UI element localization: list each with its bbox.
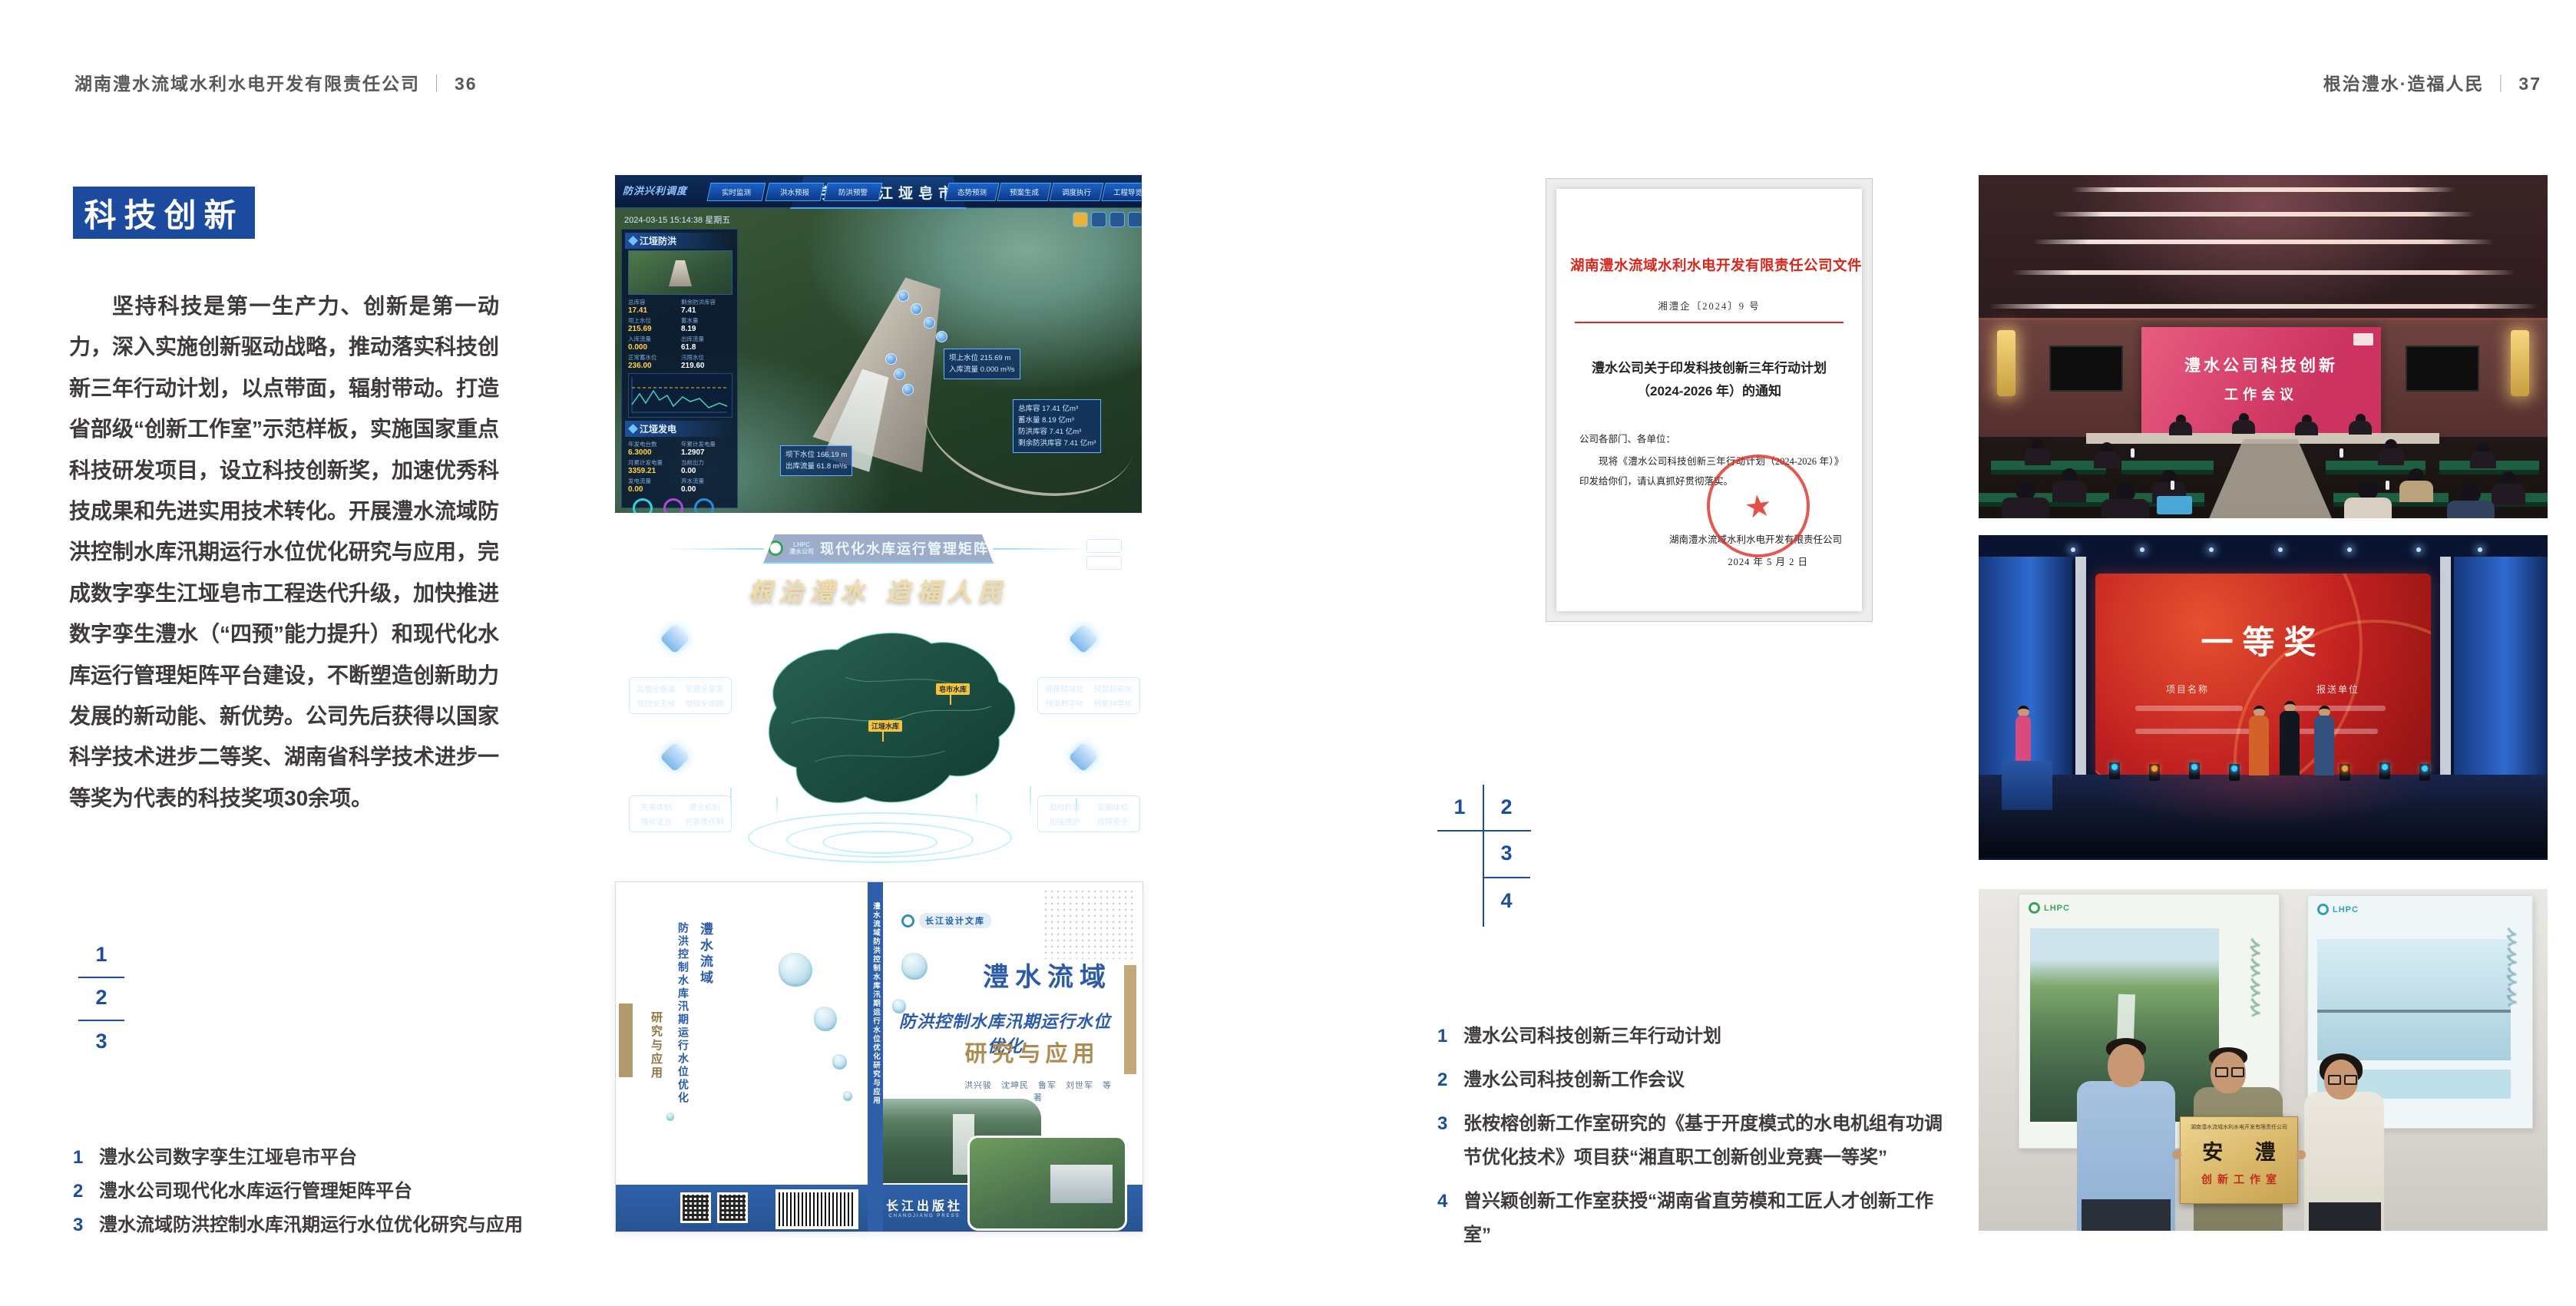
page-number-left: 36	[455, 74, 478, 94]
award-row-text	[2293, 729, 2378, 734]
caption-text: 澧水公司科技创新三年行动计划	[1463, 1020, 1944, 1053]
light-pillar	[730, 788, 732, 818]
light-pillar	[976, 794, 977, 820]
panel-icon-sizhi	[660, 742, 690, 772]
header-wing	[993, 548, 1093, 550]
gate-pin[interactable]	[936, 331, 947, 342]
changjiang-logo-icon	[901, 914, 914, 927]
ceiling-light	[2052, 212, 2475, 217]
lhpc-logo-icon	[768, 541, 783, 556]
gate-pin[interactable]	[898, 290, 909, 302]
power-metrics: 年发电台数6.3000 年累计发电量1.2907 月累计发电量3359.21 当…	[628, 440, 731, 494]
award-column-project: 项目名称	[2166, 683, 2209, 696]
lhpc-logo-icon	[2317, 904, 2329, 915]
panel-name: 四制	[638, 775, 715, 792]
book-spine: 澧水流域防洪控制水库汛期运行水位优化研究与应用	[868, 882, 883, 1232]
ceiling-light	[2072, 187, 2455, 192]
stage-light-dot	[2347, 547, 2352, 552]
hand	[2297, 1150, 2306, 1159]
caption-item: 2 澧水公司现代化水库运行管理矩阵平台	[73, 1175, 564, 1208]
caption-item: 3 澧水流域防洪控制水库汛期运行水位优化研究与应用	[73, 1208, 564, 1242]
wall-tv	[2049, 346, 2123, 392]
red-rule	[1575, 322, 1844, 323]
stage-light-dot	[2416, 547, 2421, 552]
tissue-box	[2157, 496, 2192, 514]
presenter-silhouette	[2169, 415, 2192, 435]
logo-text: LHPC澧水公司	[789, 541, 814, 555]
header-separator: ｜	[428, 74, 447, 94]
attendee-silhouette	[2052, 468, 2086, 502]
halftone-decoration	[1043, 888, 1136, 959]
plaque-name: 安 澧	[2181, 1136, 2297, 1165]
caption-number: 4	[1437, 1185, 1463, 1218]
body-paragraph: 坚持科技是第一生产力、创新是第一动力，深入实施创新驱动战略，推动落实科技创新三年…	[69, 286, 499, 818]
caption-text: 澧水公司现代化水库运行管理矩阵平台	[99, 1175, 564, 1208]
panel-name: 四管	[1047, 775, 1123, 792]
platform-title: 现代化水库运行管理矩阵	[820, 538, 989, 558]
person-right-pants	[2309, 1202, 2381, 1231]
caption-number: 2	[1437, 1063, 1463, 1097]
figure-marker-3: 3	[1488, 841, 1525, 865]
callout-storage: 总库容 17.41 亿m³ 蓄水量 8.19 亿m³ 防洪库容 7.41 亿m³…	[1013, 399, 1101, 453]
attendee-silhouette	[2101, 482, 2149, 518]
water-level-chart	[628, 373, 732, 418]
tab-flood-warning[interactable]: 防洪预警	[823, 183, 882, 201]
gate-pin[interactable]	[894, 369, 905, 380]
tab-realtime-monitor[interactable]: 实时监测	[706, 183, 766, 201]
water-droplet	[832, 1054, 847, 1070]
light-pillar	[1076, 798, 1077, 818]
attendee-silhouette	[2025, 439, 2051, 465]
poster-bridge	[2317, 939, 2511, 1060]
caption-number: 3	[73, 1208, 99, 1242]
spine-title: 澧水流域防洪控制水库汛期运行水位优化研究与应用	[870, 902, 881, 1232]
figure-matrix-platform: LHPC澧水公司 现代化水库运行管理矩阵 根治澧水 造福人民 皂市水库 江垭水库	[615, 530, 1142, 868]
ripple-ring	[822, 831, 937, 854]
attendee-silhouette	[2447, 484, 2495, 518]
back-cover-title-2: 防洪控制水库汛期运行水位优化	[676, 922, 691, 1105]
qr-code	[717, 1192, 748, 1223]
screen-title-line1: 澧水公司科技创新	[2141, 353, 2381, 376]
tan-accent-bar	[1124, 965, 1136, 1074]
panel-icon-siguan	[1068, 742, 1099, 772]
wall-lamp	[1997, 330, 2015, 396]
host-podium	[2002, 761, 2052, 810]
diamond-icon	[628, 236, 638, 246]
screen-reflection	[2094, 775, 2432, 828]
water-droplet	[843, 1091, 852, 1101]
left-page-header: 湖南澧水流域水利水电开发有限责任公司｜36	[74, 69, 478, 95]
caption-number: 1	[73, 1141, 99, 1175]
marker-divider	[1483, 877, 1530, 878]
glasses-icon	[2215, 1067, 2244, 1077]
caption-text: 曾兴颖创新工作室获授“湖南省直劳模和工匠人才创新工作室”	[1463, 1185, 1944, 1252]
gate-pin[interactable]	[885, 353, 897, 365]
caption-text: 张桉榕创新工作室研究的《基于开度模式的水电机组有功调节优化技术》项目获“湘直职工…	[1463, 1107, 1944, 1175]
panel-items: 预报精准化预警超前化 预演数字化预案科学化	[1037, 677, 1140, 714]
document-letterhead: 湖南澧水流域水利水电开发有限责任公司文件	[1570, 255, 1848, 275]
water-droplet	[892, 999, 906, 1013]
tab-dispatch-execution[interactable]: 调度执行	[1049, 183, 1103, 201]
document-number: 湘澧企〔2024〕9 号	[1556, 298, 1862, 312]
flood-panel-header: 江垭防洪	[625, 233, 734, 249]
panel-name: 四全	[638, 657, 715, 673]
figure-marker-1: 1	[78, 943, 124, 967]
glasses-icon	[2328, 1075, 2357, 1085]
user-icon[interactable]	[1073, 212, 1088, 227]
flood-panel: 江垭防洪 总库容17.41 剩余防洪库容7.41 坝上水位215.69 蓄水量8…	[621, 229, 738, 508]
poster-calligraphy: 〻〻〻〻	[2240, 937, 2268, 1017]
publisher-name: 长江出版社	[886, 1195, 963, 1214]
gate-pin[interactable]	[902, 384, 914, 395]
tan-accent-block	[619, 1003, 633, 1077]
attendee-silhouette	[2399, 468, 2433, 502]
marker-divider	[1437, 830, 1531, 832]
figure-marker-2: 2	[1488, 795, 1525, 819]
layers-icon[interactable]	[1091, 212, 1106, 227]
platform-slogan: 根治澧水 造福人民	[615, 573, 1142, 608]
light-pillar	[1030, 786, 1031, 820]
caption-text: 澧水流域防洪控制水库汛期运行水位优化研究与应用	[99, 1208, 564, 1242]
light-pillar	[776, 797, 778, 818]
stage-light-dot	[2140, 547, 2144, 552]
center-aisle	[2209, 439, 2332, 518]
stage-light-fixture	[2229, 764, 2240, 781]
gate-pin[interactable]	[911, 303, 922, 315]
presenter-silhouette	[2295, 415, 2318, 435]
publisher-block: 长江出版社 CHANGJIANG PRESS	[886, 1195, 963, 1218]
document-signature: 湖南澧水流域水利水电开发有限责任公司	[1576, 531, 1842, 546]
tab-flood-forecast[interactable]: 洪水预报	[765, 183, 824, 201]
person-left-head	[2108, 1044, 2144, 1087]
innovation-workshop-plaque: 湖南澧水流域水利水电开发有限责任公司 安 澧 创新工作室	[2180, 1116, 2298, 1204]
award-row-text	[2135, 706, 2243, 711]
presenter-silhouette	[2349, 414, 2372, 435]
platform-header: LHPC澧水公司 现代化水库运行管理矩阵	[763, 534, 994, 564]
right-captions: 1 澧水公司科技创新三年行动计划 2 澧水公司科技创新工作会议 3 张桉榕创新工…	[1437, 1020, 1944, 1252]
figure-marker-2: 2	[78, 986, 124, 1010]
generator-gauges	[633, 498, 726, 513]
wall-tv	[2406, 346, 2479, 392]
figure-meeting-photo: 澧水公司科技创新 工作会议	[1979, 175, 2548, 518]
water-bottle	[2340, 448, 2343, 458]
caption-number: 2	[73, 1175, 99, 1208]
right-page-header: 根治澧水·造福人民｜37	[2323, 69, 2541, 95]
caption-number: 1	[1437, 1020, 1463, 1053]
water-droplet	[814, 1007, 837, 1031]
marker-stem	[950, 694, 951, 705]
flood-metrics: 总库容17.41 剩余防洪库容7.41 坝上水位215.69 蓄水量8.19 入…	[628, 298, 731, 370]
panel-items: 及时检验定期体检 加强维护保障安全	[1037, 795, 1140, 832]
tab-plan-generation[interactable]: 预案生成	[997, 183, 1051, 201]
stage-light-fixture	[2340, 764, 2350, 781]
caption-item: 3 张桉榕创新工作室研究的《基于开度模式的水电机组有功调节优化技术》项目获“湘直…	[1437, 1107, 1944, 1175]
back-cover-title-1: 澧水流域	[696, 922, 715, 987]
water-bottle	[2386, 481, 2389, 490]
host-silhouette	[2015, 706, 2031, 766]
dam-thumbnail	[628, 250, 732, 295]
panel-name: 四预	[1047, 657, 1123, 673]
lhpc-logo-icon	[2029, 902, 2040, 914]
document-salutation: 公司各部门、各单位：	[1579, 431, 1839, 445]
stage-light-dot	[2478, 547, 2482, 552]
presenter-suit	[2280, 701, 2300, 775]
figure-marker-1: 1	[1442, 795, 1477, 819]
award-row-text	[2135, 729, 2250, 734]
panel-icon-siquan	[660, 623, 690, 654]
screen-title-line2: 工作会议	[2141, 384, 2381, 404]
screen-logo	[2353, 333, 2373, 346]
book-title-main: 澧水流域	[977, 956, 1112, 994]
close-button[interactable]	[1086, 539, 1122, 553]
marker-divider-vertical	[1483, 785, 1484, 927]
water-bottle	[2171, 481, 2174, 490]
plaque-subtitle: 创新工作室	[2181, 1172, 2297, 1187]
ceiling-light	[1989, 304, 2538, 309]
panel-items: 完善体制健全机制 强化法治完善责任制	[629, 795, 732, 832]
motto: 根治澧水·造福人民	[2323, 74, 2485, 94]
attendee-silhouette	[2094, 442, 2120, 468]
tab-situation-forecast[interactable]: 态势预测	[944, 183, 999, 201]
panel-items: 监管全覆盖掌握全要素 管控全天候管理全周期	[629, 677, 732, 714]
header-separator: ｜	[2492, 74, 2511, 94]
book-title-tail: 研究与应用	[963, 1036, 1101, 1068]
magazine-spread: 湖南澧水流域水利水电开发有限责任公司｜36 科技创新 坚持科技是第一生产力、创新…	[0, 0, 2576, 1306]
star-icon: ★	[1742, 486, 1774, 526]
figure-marker-3: 3	[78, 1030, 124, 1053]
ceiling-glow	[2071, 175, 2455, 321]
caption-item: 1 澧水公司科技创新三年行动计划	[1437, 1020, 1944, 1053]
attendee-silhouette	[2344, 481, 2392, 518]
dashboard-datetime: 2024-03-15 15:14:38 星期五	[624, 213, 730, 226]
page-number-right: 37	[2518, 74, 2541, 94]
figure-plaque-photo: LHPC 〻〻〻〻 LHPC 〻〻〻〻 湖南澧水流域水利水电开发有限责任公司 安…	[1979, 889, 2548, 1231]
back-cover-title-3: 研究与应用	[648, 1011, 664, 1080]
tab-project-tour[interactable]: 工程导览	[1101, 183, 1142, 201]
presenter-silhouette	[2232, 413, 2255, 434]
header-wing	[664, 548, 764, 550]
power-station-photo	[967, 1136, 1127, 1231]
panel-icon-siyu	[1068, 623, 1099, 654]
poster-logo: LHPC	[2317, 904, 2359, 915]
attendee-silhouette	[2378, 439, 2404, 465]
hand	[2172, 1150, 2181, 1159]
callout-downstream: 坝下水位 166.19 m 出库流量 61.8 m³/s	[780, 445, 852, 476]
awardee-blue	[2314, 706, 2334, 775]
series-badge: 长江设计文库	[901, 913, 991, 928]
message-icon[interactable]	[1128, 212, 1142, 227]
water-droplet	[779, 953, 812, 987]
stage-light-fixture	[2419, 764, 2430, 781]
ceiling-light	[2012, 270, 2515, 275]
diamond-icon	[628, 424, 638, 434]
figure-digital-twin-dashboard: 数字孪生江垭皂市 防洪兴利调度 实时监测 洪水预报 防洪预警 态势预测 预案生成…	[615, 175, 1142, 513]
dashboard-corner-label: 防洪兴利调度	[623, 183, 687, 197]
stage-light-fixture	[2189, 762, 2200, 779]
award-row-text	[2293, 706, 2386, 711]
ceiling-light	[2033, 240, 2494, 244]
menu-button[interactable]	[1086, 556, 1122, 570]
map-marker-jiangya[interactable]: 江垭水库	[868, 720, 902, 732]
attendee-silhouette	[2470, 442, 2496, 468]
callout-upstream: 坝上水位 215.69 m 入库流量 0.000 m³/s	[944, 349, 1020, 379]
stage-light-fixture	[2149, 764, 2160, 781]
figure-official-document: 湖南澧水流域水利水电开发有限责任公司文件 湘澧企〔2024〕9 号 澧水公司关于…	[1546, 178, 1873, 622]
caption-item: 1 澧水公司数字孪生江垭皂市平台	[73, 1141, 564, 1175]
stage-light-dot	[2209, 547, 2214, 552]
publisher-en: CHANGJIANG PRESS	[886, 1214, 963, 1218]
document-page: 湖南澧水流域水利水电开发有限责任公司文件 湘澧企〔2024〕9 号 澧水公司关于…	[1556, 189, 1862, 611]
stage-light-fixture	[2109, 762, 2120, 779]
water-droplet	[666, 1113, 674, 1121]
wall-lamp	[2511, 330, 2529, 396]
plaque-org-line: 湖南澧水流域水利水电开发有限责任公司	[2181, 1123, 2297, 1131]
poster-calligraphy: 〻〻〻〻	[2496, 927, 2525, 1007]
award-column-unit: 报送单位	[2316, 683, 2359, 696]
document-subject: 澧水公司关于印发科技创新三年行动计划 （2024-2026 年）的通知	[1556, 357, 1862, 403]
section-title: 科技创新	[73, 187, 255, 239]
caption-item: 4 曾兴颖创新工作室获授“湖南省直劳模和工匠人才创新工作室”	[1437, 1185, 1944, 1252]
stage-light-dot	[2278, 547, 2283, 552]
figure-marker-4: 4	[1488, 889, 1525, 913]
caption-text: 澧水公司科技创新工作会议	[1463, 1063, 1944, 1097]
marker-stem	[882, 731, 884, 742]
marker-divider	[78, 1020, 124, 1021]
gate-pin[interactable]	[924, 317, 935, 329]
person-left-pants	[2082, 1199, 2171, 1231]
attendee-silhouette	[2492, 471, 2525, 505]
attendee-silhouette	[2002, 481, 2049, 518]
poster-logo: LHPC	[2029, 902, 2070, 914]
caption-number: 3	[1437, 1107, 1463, 1141]
barcode	[775, 1189, 858, 1229]
company-name: 湖南澧水流域水利水电开发有限责任公司	[74, 74, 420, 94]
water-bottle	[2131, 448, 2135, 458]
locate-icon[interactable]	[1109, 212, 1125, 227]
qr-code	[680, 1192, 711, 1223]
stage-light-dot	[2071, 547, 2075, 552]
caption-text: 澧水公司数字孪生江垭皂市平台	[99, 1141, 564, 1175]
water-droplet	[901, 953, 928, 980]
stage-light-fixture	[2379, 762, 2390, 779]
figure-book-cover: 澧水流域 防洪控制水库汛期运行水位优化 研究与应用 澧水流域防洪控制水库汛期运行…	[615, 881, 1143, 1232]
caption-item: 2 澧水公司科技创新工作会议	[1437, 1063, 1944, 1097]
awardee-orange	[2249, 706, 2269, 775]
figure-award-ceremony: 一等奖 项目名称 报送单位	[1979, 535, 2548, 860]
left-captions: 1 澧水公司数字孪生江垭皂市平台 2 澧水公司现代化水库运行管理矩阵平台 3 澧…	[73, 1141, 564, 1242]
marker-divider	[78, 977, 124, 978]
power-panel-header: 江垭发电	[625, 421, 734, 437]
map-marker-zaoshi[interactable]: 皂市水库	[936, 683, 970, 695]
